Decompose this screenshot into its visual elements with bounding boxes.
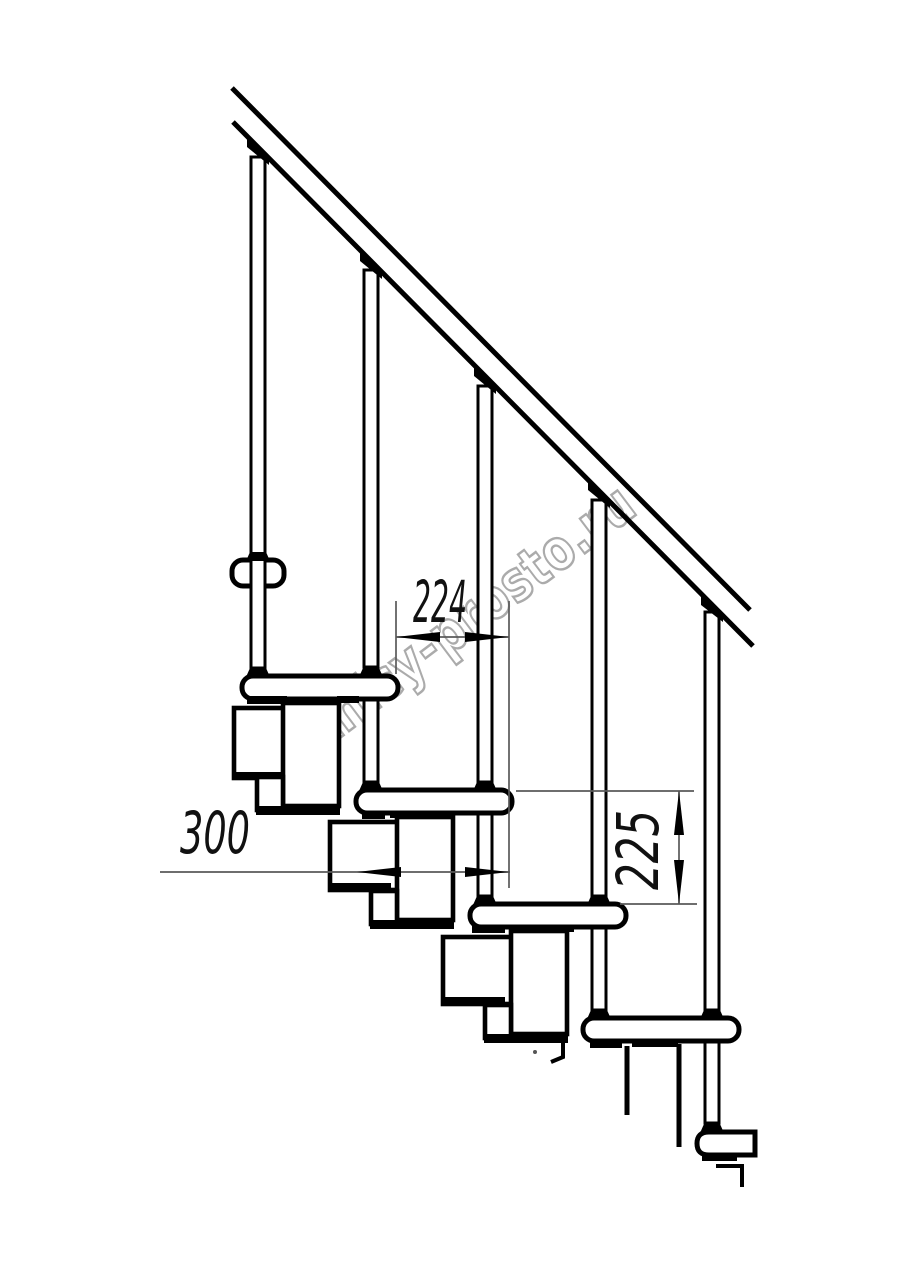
- module-box: [443, 937, 515, 1004]
- baluster-rod: [478, 386, 492, 782]
- dimension-value-300: 300: [180, 799, 250, 867]
- staircase-technical-drawing: lestnicy-prosto.ru: [0, 0, 914, 1280]
- baluster-rod: [364, 270, 378, 667]
- module-flange: [256, 806, 340, 815]
- module-unit-4-cut: [551, 1042, 679, 1147]
- module-unit-3: [443, 931, 568, 1043]
- foot: [246, 668, 270, 677]
- fixing-plate: [532, 925, 574, 932]
- baluster-rod-lower: [592, 927, 606, 1010]
- arrowhead-up: [674, 791, 684, 835]
- tread-3: [470, 904, 626, 927]
- break-hook-line: [551, 1042, 563, 1062]
- module-flange: [484, 1034, 568, 1043]
- collar: [587, 896, 611, 905]
- dimension-value-224: 224: [413, 568, 467, 636]
- collar: [700, 1010, 724, 1019]
- speck: [533, 1050, 537, 1054]
- fixing-plate: [632, 1040, 678, 1047]
- module-joint: [257, 777, 283, 810]
- module-joint: [485, 1005, 511, 1038]
- fixing-plate: [247, 696, 287, 704]
- baluster-4: [592, 500, 606, 1010]
- baluster-3: [478, 386, 492, 896]
- baluster-rod-lower: [478, 813, 492, 896]
- module-box: [234, 708, 287, 778]
- fixing-plate: [472, 925, 505, 933]
- module-flange: [370, 920, 454, 929]
- fixing-plate: [390, 811, 445, 818]
- module-unit-5-cut: [702, 1153, 742, 1187]
- baluster-rod-lower: [705, 1041, 719, 1123]
- fixing-plate: [362, 811, 385, 819]
- collar: [473, 782, 497, 791]
- baluster-5: [705, 612, 719, 1123]
- baluster-rod: [251, 157, 265, 668]
- module-tube: [397, 817, 453, 920]
- baluster-rod-lower: [364, 699, 378, 782]
- staircase-drawing-page: lestnicy-prosto.ru: [0, 0, 914, 1280]
- fixing-plate: [337, 696, 359, 703]
- foot: [587, 1010, 611, 1019]
- tread-5-cut: [697, 1132, 755, 1155]
- foot: [473, 896, 497, 905]
- module-tube: [511, 931, 567, 1034]
- module-box: [330, 822, 403, 890]
- tread-2: [356, 790, 512, 813]
- collar: [246, 552, 270, 561]
- fixing-plate: [590, 1040, 622, 1048]
- baluster-1: [251, 157, 265, 668]
- module-tube: [283, 703, 339, 806]
- tread-4: [583, 1018, 739, 1041]
- foot: [700, 1124, 724, 1133]
- tread-1: [242, 676, 398, 699]
- baluster-2: [364, 270, 378, 782]
- baluster-rod: [705, 612, 719, 1010]
- arrowhead-down: [674, 860, 684, 904]
- break-step-line: [716, 1166, 742, 1187]
- module-joint: [371, 891, 397, 924]
- dimension-value-225: 225: [604, 810, 672, 890]
- foot: [359, 782, 383, 791]
- collar: [359, 668, 383, 677]
